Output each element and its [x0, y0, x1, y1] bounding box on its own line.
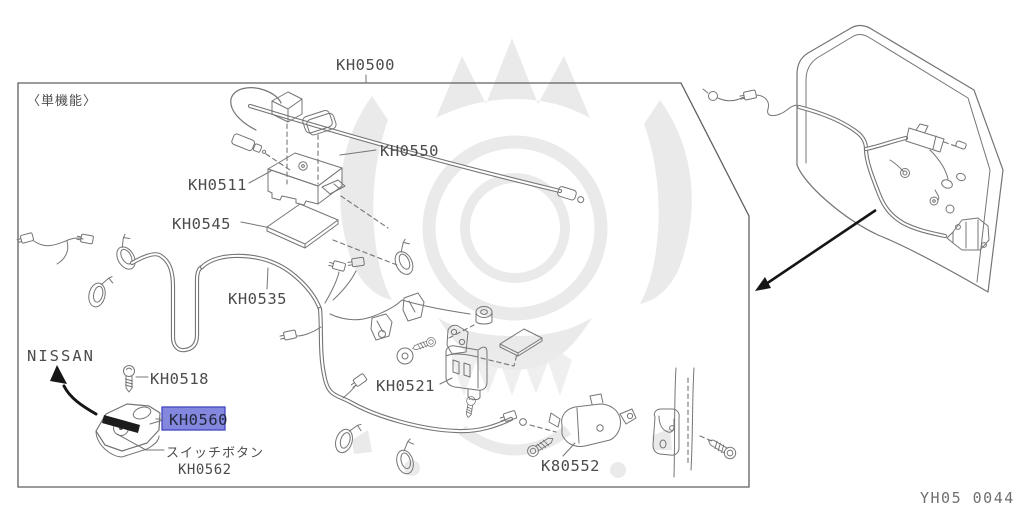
- label-kh0518[interactable]: KH0518: [150, 370, 209, 388]
- label-kh0535[interactable]: KH0535: [228, 290, 287, 308]
- brand-nissan: NISSAN: [27, 347, 95, 365]
- door-illustration: [703, 26, 1003, 292]
- label-k80552[interactable]: K80552: [541, 457, 600, 475]
- door-edge-handle-parts: [653, 368, 738, 477]
- label-kh0550[interactable]: KH0550: [380, 142, 439, 160]
- screw-kh0518: [124, 366, 135, 393]
- note-single-function: 〈単機能〉: [27, 93, 97, 109]
- nissan-arrow: [50, 365, 96, 414]
- label-kh0560-highlighted[interactable]: KH0560: [169, 411, 228, 429]
- label-switch-button: スイッチボタン: [166, 446, 264, 461]
- pad-kh0545: [267, 204, 397, 265]
- parts-diagram-page: KH0500 〈単機能〉 KH0550 KH0511 KH0545 KH0535…: [0, 0, 1024, 506]
- label-kh0562[interactable]: KH0562: [178, 462, 232, 478]
- left-cable-and-clamps: [16, 233, 143, 310]
- keyfob-kh0560: [96, 404, 160, 457]
- label-kh0511[interactable]: KH0511: [188, 176, 247, 194]
- label-kh0500[interactable]: KH0500: [336, 56, 395, 74]
- label-kh0545[interactable]: KH0545: [172, 215, 231, 233]
- diagram-canvas: KH0500 〈単機能〉 KH0550 KH0511 KH0545 KH0535…: [0, 0, 1024, 506]
- watermark-emblem: [340, 38, 692, 478]
- pointer-arrow: [755, 210, 876, 291]
- drawing-code: YH05 0044: [920, 489, 1015, 506]
- label-kh0521[interactable]: KH0521: [376, 377, 435, 395]
